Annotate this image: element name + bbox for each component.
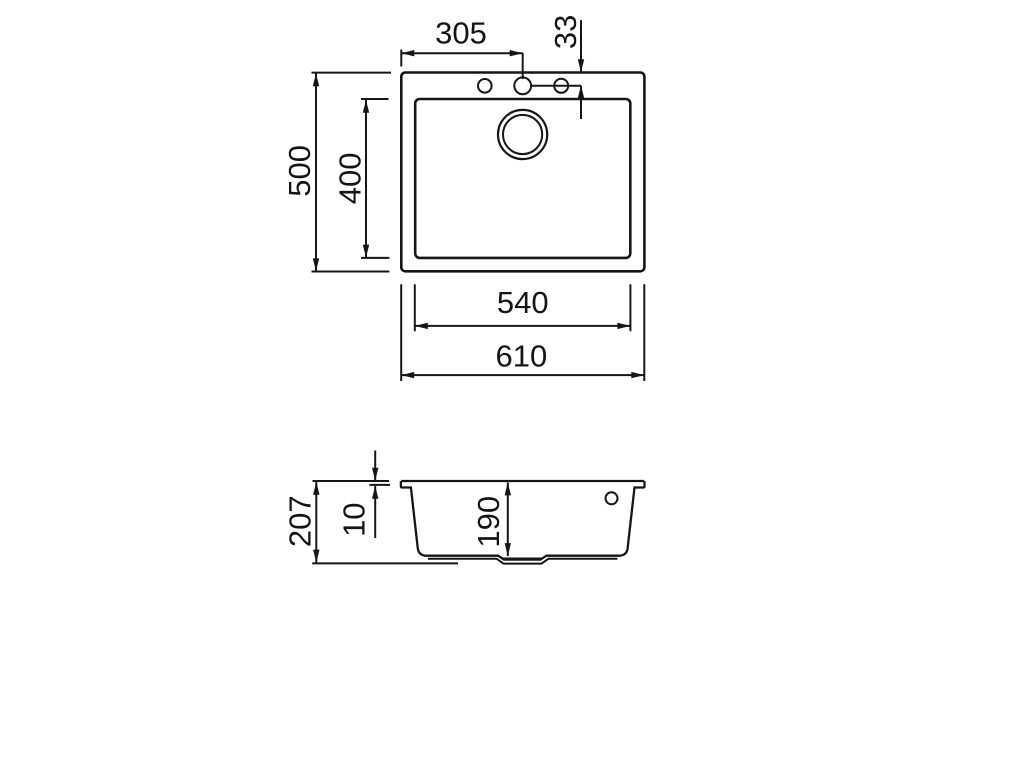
svg-text:10: 10 xyxy=(337,502,372,536)
svg-text:500: 500 xyxy=(282,145,317,197)
svg-text:305: 305 xyxy=(435,16,487,51)
svg-text:540: 540 xyxy=(497,285,549,320)
svg-text:33: 33 xyxy=(548,15,583,49)
svg-text:207: 207 xyxy=(283,495,318,547)
svg-text:610: 610 xyxy=(496,338,548,373)
svg-text:190: 190 xyxy=(471,496,506,548)
svg-text:400: 400 xyxy=(332,153,367,205)
